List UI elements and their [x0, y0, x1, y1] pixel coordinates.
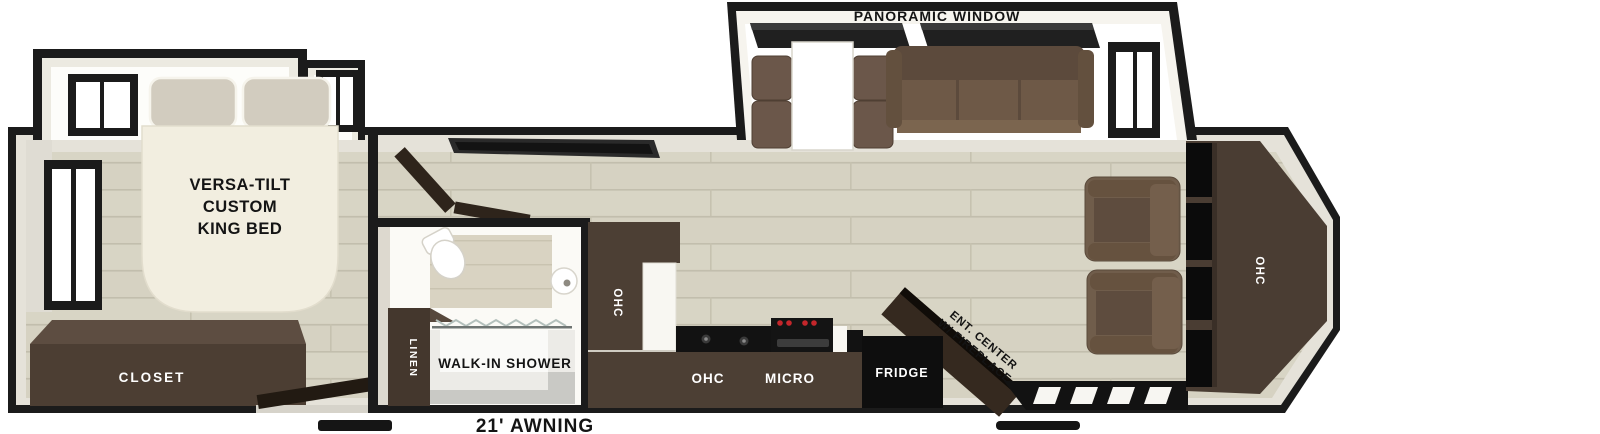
pillow: [150, 78, 236, 128]
fridge-label: FRIDGE: [875, 366, 928, 380]
bathroom-top-wall: [368, 218, 590, 227]
floorplan-svg: PANORAMIC WINDOW VERSA-TILT CUSTOM KING …: [0, 0, 1600, 434]
bedroom-entry-step: [318, 420, 392, 431]
dinette-table: [792, 42, 853, 150]
bedroom-divider-wall: [368, 132, 378, 413]
kitchen-lower-cabinets: [588, 352, 880, 408]
dinette-chair: [752, 101, 792, 148]
bed-mattress: [142, 126, 338, 312]
bathroom-sink: [551, 268, 577, 294]
shower: WALK-IN SHOWER: [430, 320, 575, 404]
awning-label: 21' AWNING: [476, 416, 594, 434]
floorplan-stage: PANORAMIC WINDOW VERSA-TILT CUSTOM KING …: [0, 0, 1600, 434]
bed-label-line1: VERSA-TILT: [190, 176, 291, 194]
shower-label: WALK-IN SHOWER: [438, 356, 571, 371]
theater-seat-2: [1087, 270, 1182, 354]
bed-label: VERSA-TILT CUSTOM KING BED: [190, 176, 291, 238]
micro-label: MICRO: [765, 371, 815, 386]
counter-black-seg: [847, 330, 863, 352]
counter-gap: [831, 326, 847, 352]
grab-handle: [996, 421, 1080, 430]
faucet-dot: [704, 337, 708, 341]
bedroom-slide-window-left: [68, 74, 138, 136]
rear-ohc-label: OHC: [1253, 256, 1265, 285]
bathroom: LINEN WALK-IN SHOWER: [368, 218, 590, 413]
panoramic-window-left-glass-hl: [750, 23, 904, 30]
cooktop: [771, 318, 833, 352]
pantry-ohc-label: OHC: [611, 288, 623, 317]
linen-label: LINEN: [407, 339, 419, 378]
entry-steps: [1004, 381, 1188, 410]
counter-white: [643, 263, 676, 352]
counter-ohc-label: OHC: [692, 371, 725, 386]
slide-end-window: [1108, 42, 1160, 138]
theater-seat-1: [1085, 177, 1180, 261]
faucet-dot: [742, 339, 746, 343]
bedroom-window-left-wall: [44, 160, 102, 310]
dinette-chair: [752, 56, 792, 100]
bed-label-line2: CUSTOM: [203, 198, 277, 216]
closet: CLOSET: [30, 320, 306, 406]
closet-label: CLOSET: [119, 370, 186, 385]
dinette: [752, 42, 893, 150]
sink-counter: [676, 326, 771, 352]
panoramic-window-label: PANORAMIC WINDOW: [854, 8, 1021, 24]
fridge: FRIDGE: [862, 336, 943, 408]
pillow: [243, 78, 330, 128]
bed-label-line3: KING BED: [198, 220, 283, 238]
panoramic-window-right-glass-hl: [920, 23, 1094, 30]
sofa: [886, 46, 1094, 133]
